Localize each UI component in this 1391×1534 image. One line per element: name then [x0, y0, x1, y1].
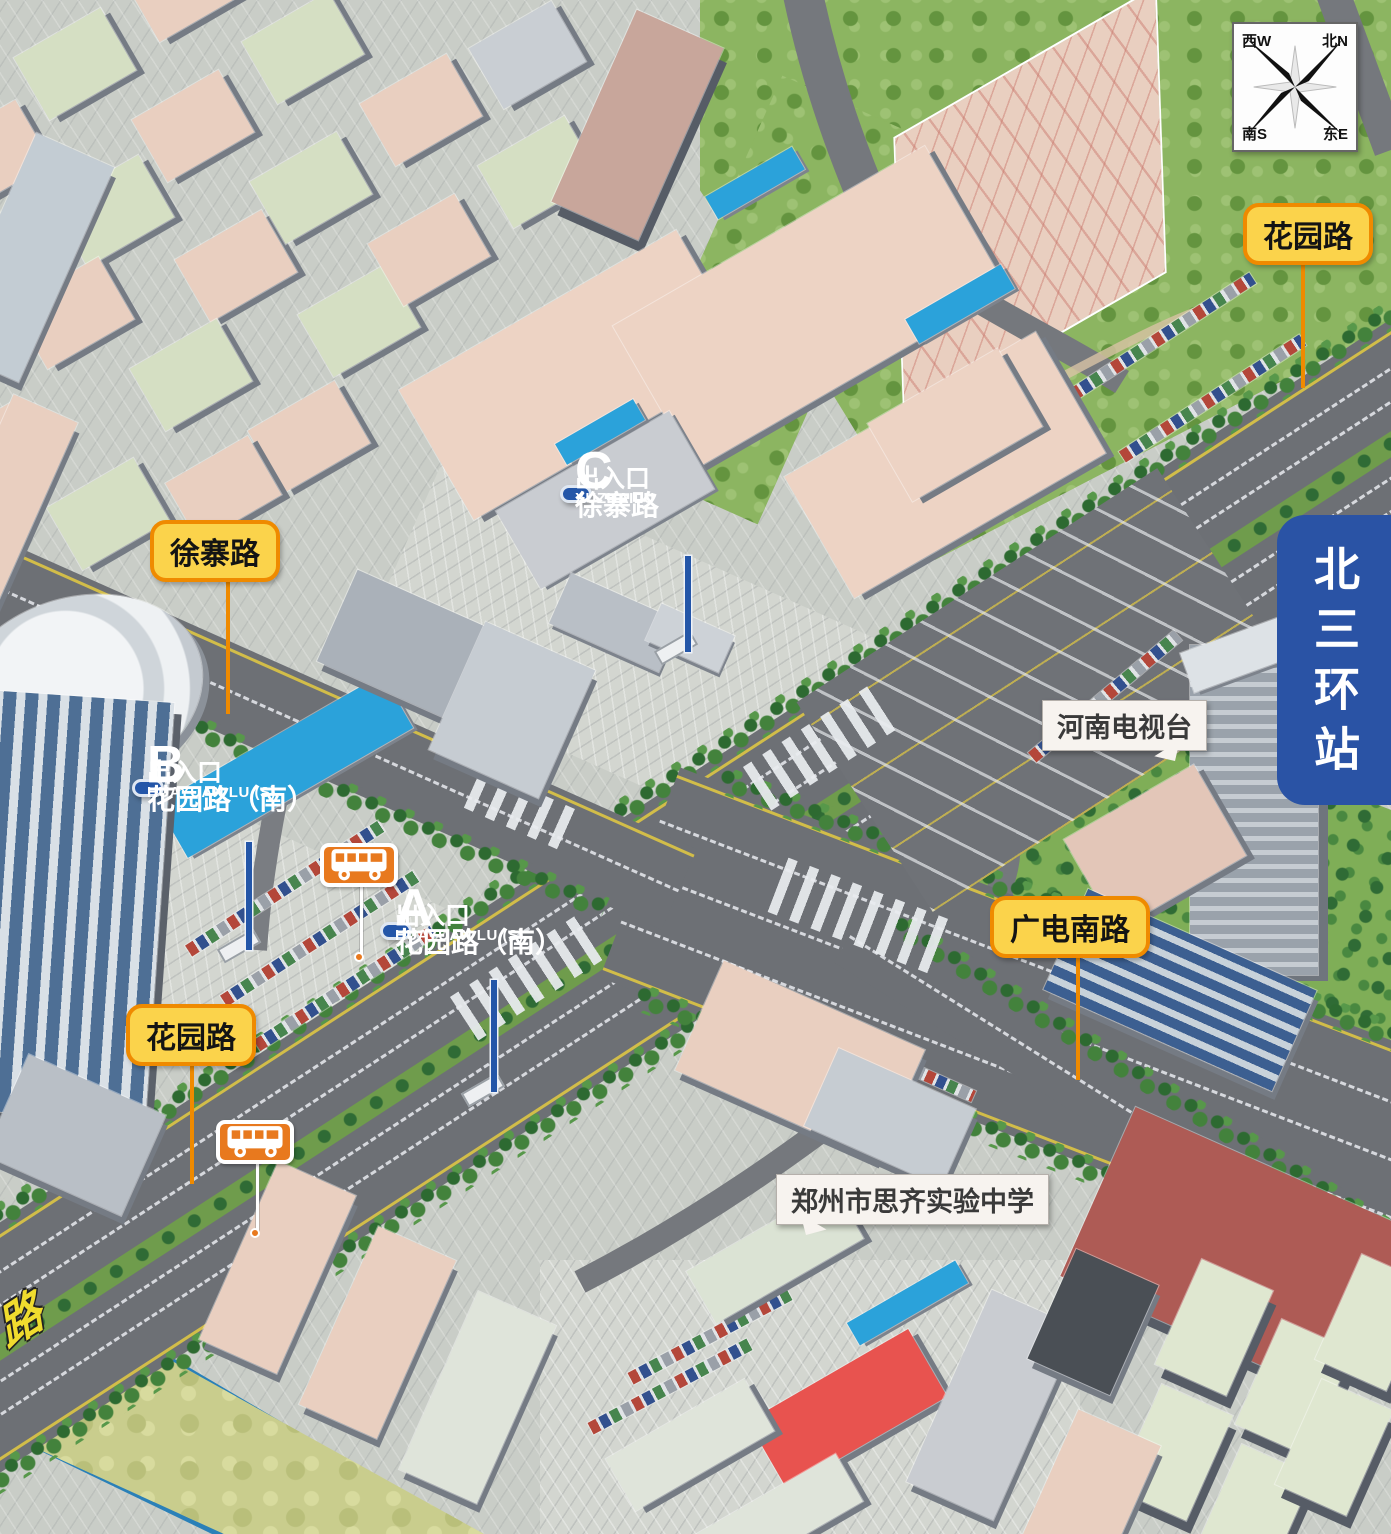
- landmark-label-school: 郑州市思齐实验中学: [776, 1174, 1049, 1225]
- exit-label-c: C 出入口 徐寨路 XUZHAILU: [560, 485, 592, 503]
- pointer-line: [1301, 253, 1305, 388]
- bus-stop-icon: [320, 843, 398, 887]
- compass-east: 东E: [1323, 123, 1348, 144]
- pointer-line: [190, 1054, 194, 1184]
- exit-entrance-text: 出入口: [147, 760, 222, 788]
- pointer-line: [226, 572, 230, 714]
- landmark-text: 郑州市思齐实验中学: [791, 1187, 1034, 1217]
- pointer-line: [491, 980, 497, 1092]
- bus-stop-icon: [216, 1120, 294, 1164]
- exit-label-a: A 出入口 花园路（南） HUAYUAN LU (S): [380, 922, 412, 940]
- pointer-line: [256, 1162, 259, 1232]
- road-label-huayuan-north: 花园路: [1243, 203, 1373, 265]
- exit-entrance-text: 出入口: [575, 466, 650, 494]
- exit-road-pinyin: HUAYUAN LU (S): [147, 785, 276, 801]
- station-name: 北三环站: [1308, 545, 1360, 785]
- road-label-text: 花园路: [1263, 221, 1353, 254]
- station-name-banner: 北三环站: [1277, 515, 1391, 805]
- road-label-text: 花园路: [146, 1022, 236, 1055]
- compass-west: 西W: [1242, 30, 1271, 51]
- road-label-text: 徐寨路: [170, 538, 260, 571]
- compass-south: 南S: [1242, 123, 1267, 144]
- station-area-map: 花园路 徐寨路 广电南路 花园路 C 出入口 徐寨路 XUZHAILU B 出入…: [0, 0, 1391, 1534]
- compass-rose: 西W 北N 南S 东E: [1232, 22, 1358, 152]
- pointer-line: [1076, 948, 1080, 1080]
- bus-stop-dot: [354, 952, 364, 962]
- landmark-text: 河南电视台: [1057, 713, 1192, 743]
- compass-north: 北N: [1322, 30, 1348, 51]
- bus-stop-dot: [250, 1228, 260, 1238]
- pointer-line: [685, 556, 691, 652]
- road-label-text: 广电南路: [1010, 914, 1130, 947]
- road-label-huayuan-south: 花园路: [126, 1004, 256, 1066]
- landmark-label-tv: 河南电视台: [1042, 700, 1207, 751]
- exit-label-b: B 出入口 花园路（南） HUAYUAN LU (S): [132, 779, 164, 797]
- pointer-line: [246, 842, 252, 950]
- road-label-xuzhai: 徐寨路: [150, 520, 280, 582]
- pointer-line: [360, 886, 363, 956]
- exit-road-pinyin: HUAYUAN LU (S): [395, 928, 524, 944]
- exit-entrance-text: 出入口: [395, 903, 470, 931]
- road-label-guangdian-south: 广电南路: [990, 896, 1150, 958]
- exit-road-pinyin: XUZHAILU: [575, 491, 655, 507]
